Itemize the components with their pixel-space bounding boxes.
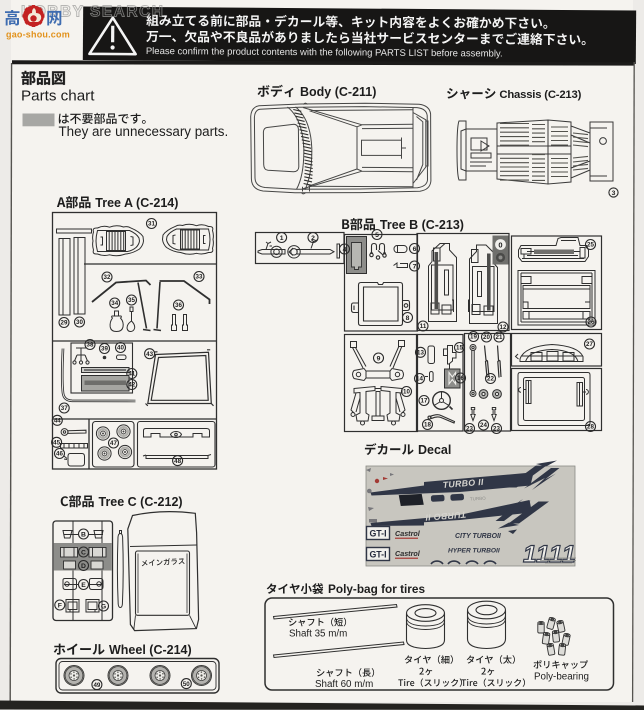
svg-text:1: 1 <box>549 541 563 568</box>
svg-text:HYPER TURBO: HYPER TURBO <box>448 548 497 555</box>
svg-text:TURBO: TURBO <box>470 496 486 502</box>
svg-text:gao-shou.com: gao-shou.com <box>6 30 70 40</box>
svg-text:17: 17 <box>421 398 428 405</box>
svg-text:Decal: Decal <box>418 443 451 457</box>
svg-text:G: G <box>101 603 106 610</box>
svg-text:48: 48 <box>174 458 181 465</box>
svg-text:0: 0 <box>498 240 502 249</box>
svg-text:Parts chart: Parts chart <box>21 88 95 105</box>
svg-text:42: 42 <box>128 382 135 389</box>
svg-text:Castrol: Castrol <box>395 549 421 558</box>
svg-text:23: 23 <box>493 426 500 433</box>
svg-text:16: 16 <box>457 375 464 382</box>
svg-text:Tree A (C-214): Tree A (C-214) <box>95 196 178 210</box>
svg-text:28: 28 <box>587 424 594 431</box>
svg-text:Body (C-211): Body (C-211) <box>300 85 376 99</box>
svg-text:44: 44 <box>54 418 61 425</box>
svg-text:D: D <box>81 563 86 570</box>
svg-text:5: 5 <box>375 232 379 239</box>
svg-text:32: 32 <box>104 274 111 281</box>
svg-text:24: 24 <box>480 422 487 429</box>
svg-text:27: 27 <box>586 341 593 348</box>
svg-text:25: 25 <box>587 242 594 249</box>
svg-text:14: 14 <box>416 376 423 383</box>
svg-text:10: 10 <box>403 389 410 396</box>
svg-text:29: 29 <box>61 320 68 327</box>
svg-text:21: 21 <box>496 334 503 341</box>
svg-text:Castrol: Castrol <box>395 529 421 538</box>
svg-text:Tree C (C-212): Tree C (C-212) <box>99 495 183 509</box>
svg-text:9: 9 <box>377 355 381 362</box>
svg-text:1: 1 <box>562 541 576 568</box>
svg-text:50: 50 <box>183 681 190 688</box>
svg-text:They are unnecessary parts.: They are unnecessary parts. <box>59 124 229 139</box>
svg-text:4: 4 <box>343 246 347 253</box>
svg-text:35: 35 <box>128 297 135 304</box>
svg-text:Wheel (C-214): Wheel (C-214) <box>109 643 192 657</box>
svg-text:Shaft 60 m/m: Shaft 60 m/m <box>315 679 373 690</box>
svg-text:46: 46 <box>56 451 63 458</box>
svg-text:47: 47 <box>110 440 117 447</box>
svg-text:7: 7 <box>413 263 417 270</box>
svg-text:C: C <box>81 549 86 556</box>
svg-text:33: 33 <box>196 274 203 281</box>
svg-text:36: 36 <box>175 302 182 309</box>
svg-text:49: 49 <box>93 682 100 689</box>
svg-text:45: 45 <box>53 440 60 447</box>
svg-text:13: 13 <box>417 350 424 357</box>
svg-text:34: 34 <box>111 300 118 307</box>
svg-text:F: F <box>58 602 62 609</box>
svg-text:B: B <box>81 531 86 538</box>
svg-text:2: 2 <box>311 235 315 242</box>
svg-text:19: 19 <box>470 334 477 341</box>
svg-text:GT-I: GT-I <box>369 550 386 560</box>
svg-text:20: 20 <box>483 334 490 341</box>
svg-text:Poly-bag for tires: Poly-bag for tires <box>328 582 425 596</box>
svg-text:II: II <box>496 548 500 555</box>
svg-text:CITY TURBOII: CITY TURBOII <box>455 533 502 540</box>
svg-text:Poly-bearing: Poly-bearing <box>534 672 589 683</box>
svg-text:22: 22 <box>487 376 494 383</box>
svg-text:1: 1 <box>523 541 537 568</box>
svg-text:23: 23 <box>466 426 473 433</box>
svg-text:GT-I: GT-I <box>369 529 386 539</box>
svg-text:8: 8 <box>406 315 410 322</box>
svg-text:15: 15 <box>456 345 463 352</box>
svg-text:38: 38 <box>87 342 94 349</box>
svg-text:Tree B (C-213): Tree B (C-213) <box>380 218 464 232</box>
svg-text:40: 40 <box>117 345 124 352</box>
svg-text:1: 1 <box>536 541 550 568</box>
svg-text:12: 12 <box>500 324 507 331</box>
svg-text:18: 18 <box>424 422 431 429</box>
svg-text:30: 30 <box>76 319 83 326</box>
svg-text:Shaft 35 m/m: Shaft 35 m/m <box>289 629 347 640</box>
svg-text:E: E <box>81 582 86 589</box>
svg-text:Chassis (C-213): Chassis (C-213) <box>499 89 581 101</box>
svg-text:43: 43 <box>146 351 153 358</box>
svg-text:37: 37 <box>61 405 68 412</box>
svg-text:3: 3 <box>612 190 616 197</box>
svg-text:6: 6 <box>413 246 417 253</box>
svg-text:31: 31 <box>148 221 155 228</box>
svg-text:11: 11 <box>420 323 427 330</box>
svg-text:1: 1 <box>280 235 284 242</box>
svg-text:26: 26 <box>588 319 595 326</box>
svg-text:39: 39 <box>101 346 108 353</box>
